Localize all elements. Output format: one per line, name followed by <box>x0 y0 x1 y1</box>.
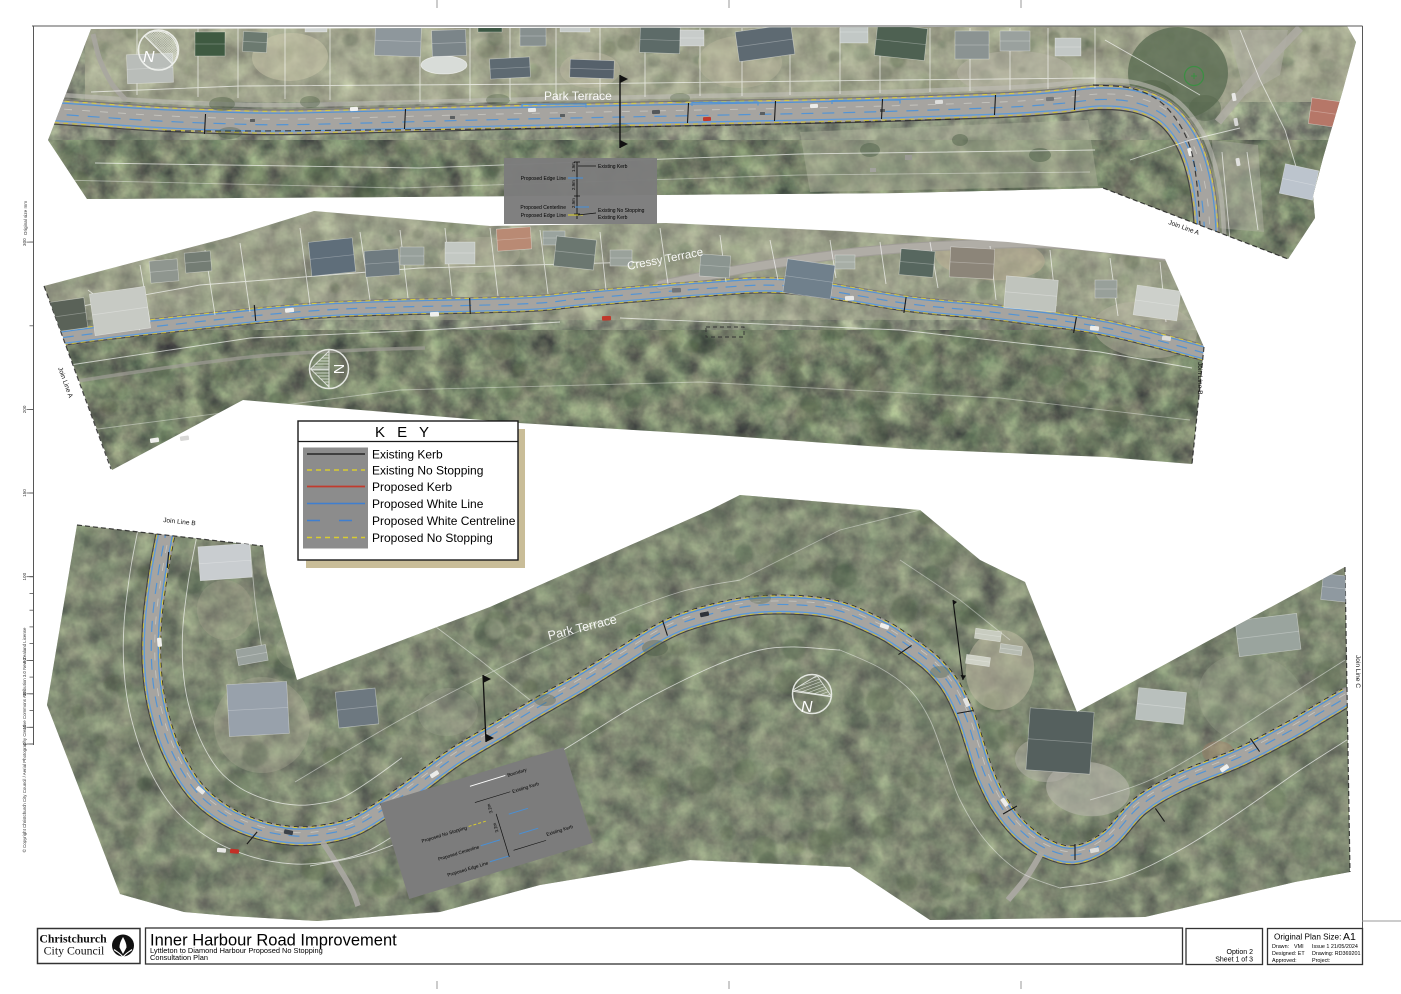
svg-text:Sheet 1 of 3: Sheet 1 of 3 <box>1215 957 1253 964</box>
svg-text:Existing No Stopping: Existing No Stopping <box>372 463 483 477</box>
svg-text:VMI: VMI <box>1294 944 1304 950</box>
svg-text:200: 200 <box>22 405 27 413</box>
svg-text:Existing Kerb: Existing Kerb <box>598 215 628 221</box>
svg-text:Join Line C: Join Line C <box>1354 655 1361 688</box>
svg-text:Option 2: Option 2 <box>1227 949 1254 956</box>
svg-text:300: 300 <box>22 238 27 246</box>
svg-text:Proposed Edge Line: Proposed Edge Line <box>521 176 567 182</box>
svg-text:A1: A1 <box>1343 931 1356 943</box>
svg-text:2.9m: 2.9m <box>571 198 576 208</box>
svg-text:Existing No Stopping: Existing No Stopping <box>598 208 645 214</box>
svg-text:Issue 1 21/05/2024: Issue 1 21/05/2024 <box>1312 944 1358 950</box>
svg-text:2.9m: 2.9m <box>571 180 576 190</box>
svg-text:Drawn:: Drawn: <box>1272 944 1289 950</box>
svg-text:Proposed White Centreline: Proposed White Centreline <box>372 514 516 528</box>
svg-text:Designed: ET: Designed: ET <box>1272 951 1305 957</box>
svg-text:1.9m: 1.9m <box>571 162 576 172</box>
svg-text:K E Y: K E Y <box>375 424 433 441</box>
svg-text:Original size mm: Original size mm <box>23 201 28 235</box>
svg-text:N: N <box>143 49 155 66</box>
svg-text:Proposed Edge Line: Proposed Edge Line <box>521 213 567 219</box>
svg-text:Proposed Kerb: Proposed Kerb <box>372 480 452 494</box>
svg-text:City Council: City Council <box>44 944 105 958</box>
svg-text:Existing Kerb: Existing Kerb <box>372 447 443 461</box>
svg-text:N: N <box>330 364 346 374</box>
svg-text:100: 100 <box>22 572 27 580</box>
svg-text:Join Line B: Join Line B <box>1196 362 1203 395</box>
svg-text:Drawing: RD369201: Drawing: RD369201 <box>1312 951 1361 957</box>
svg-text:Original Plan Size:: Original Plan Size: <box>1274 933 1341 942</box>
svg-text:150: 150 <box>22 489 27 497</box>
svg-text:Existing Kerb: Existing Kerb <box>598 164 628 170</box>
svg-text:Proposed White Line: Proposed White Line <box>372 497 484 511</box>
svg-text:Proposed No Stopping: Proposed No Stopping <box>372 531 493 545</box>
svg-text:Approved:: Approved: <box>1272 958 1297 964</box>
svg-text:Project:: Project: <box>1312 958 1330 964</box>
svg-text:Proposed Centerline: Proposed Centerline <box>520 205 566 211</box>
svg-text:© Copyright Christchurch City: © Copyright Christchurch City Council / … <box>22 627 27 852</box>
svg-text:Consultation Plan: Consultation Plan <box>150 953 208 962</box>
svg-text:Park Terrace: Park Terrace <box>544 89 612 103</box>
svg-text:N: N <box>801 699 813 716</box>
